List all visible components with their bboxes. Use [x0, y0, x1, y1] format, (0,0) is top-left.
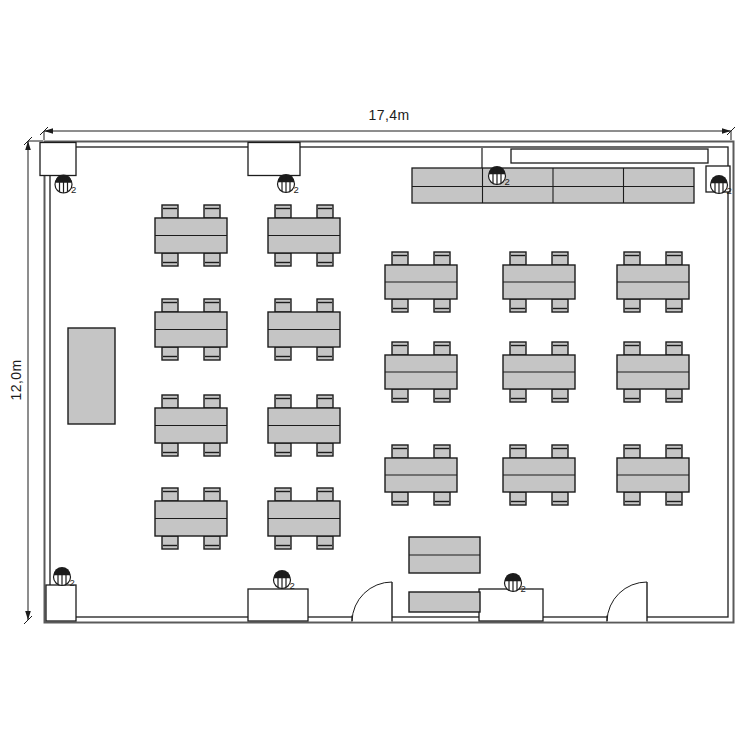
left-table-block-table-r1c2-chair-top1	[275, 205, 291, 218]
right-table-block-table-r2c1-chair-top1	[392, 342, 408, 355]
marker-label: 2	[727, 185, 732, 196]
left-table-block-table-r1c1-chair-bottom2	[204, 253, 220, 266]
left-table-block-table-r4c1-chair-bottom2	[204, 536, 220, 549]
left-table-block-table-r2c2-chair-bottom2	[317, 347, 333, 360]
left-table-block-table-r1c2-chair-bottom2	[317, 253, 333, 266]
cabinet	[68, 328, 115, 424]
right-table-block-table-r1c1-chair-top1	[392, 252, 408, 265]
right-table-block-table-r2c2-chair-top1	[510, 342, 526, 355]
left-table-block-table-r2c2-chair-top1	[275, 299, 291, 312]
right-table-block-table-r2c1-chair-bottom1	[392, 389, 408, 402]
right-table-block-table-r2c2-chair-bottom1	[510, 389, 526, 402]
right-table-block-table-r3c1-chair-top2	[434, 445, 450, 458]
right-table-block-table-r2c1-chair-bottom2	[434, 389, 450, 402]
bottom-table-2	[409, 592, 480, 612]
right-table-block-table-r3c3-chair-bottom2	[666, 492, 682, 505]
left-table-block-table-r1c1-chair-top2	[204, 205, 220, 218]
right-table-block-table-r1c3-chair-top2	[666, 252, 682, 265]
right-table-block-table-r1c2-chair-bottom2	[552, 299, 568, 312]
marker-label: 2	[521, 583, 526, 594]
right-table-block-table-r3c3-chair-top1	[624, 445, 640, 458]
left-table-block-table-r4c2-chair-bottom1	[275, 536, 291, 549]
right-table-block-table-r3c2-chair-bottom2	[552, 492, 568, 505]
right-table-block-table-r2c2-chair-top2	[552, 342, 568, 355]
left-table-block-table-r2c1-chair-bottom2	[204, 347, 220, 360]
right-table-block-table-r3c1-chair-bottom1	[392, 492, 408, 505]
right-table-block-table-r1c2-chair-top1	[510, 252, 526, 265]
left-table-block-table-r1c2-chair-bottom1	[275, 253, 291, 266]
marker-label: 2	[294, 184, 299, 195]
right-table-block-table-r2c3-chair-bottom1	[624, 389, 640, 402]
left-table-block-table-r4c2-chair-top1	[275, 488, 291, 501]
left-table-block-table-r1c1-chair-bottom1	[162, 253, 178, 266]
right-table-block-table-r3c1-chair-bottom2	[434, 492, 450, 505]
left-table-block-table-r2c2-chair-bottom1	[275, 347, 291, 360]
left-table-block-table-r3c2-chair-top2	[317, 395, 333, 408]
left-table-block-table-r2c2-chair-top2	[317, 299, 333, 312]
wall-pillar-4	[46, 585, 76, 621]
left-table-block-table-r4c1-chair-top2	[204, 488, 220, 501]
whiteboard	[511, 149, 708, 163]
wall-marker-2: 2	[278, 174, 299, 195]
right-table-block-table-r2c3-chair-top1	[624, 342, 640, 355]
right-table-block-table-r1c1-chair-bottom2	[434, 299, 450, 312]
left-table-block-table-r4c1-chair-bottom1	[162, 536, 178, 549]
right-table-block-table-r3c3-chair-bottom1	[624, 492, 640, 505]
right-table-block-table-r3c2-chair-top2	[552, 445, 568, 458]
left-table-block-table-r1c1-chair-top1	[162, 205, 178, 218]
right-table-block-table-r2c3-chair-bottom2	[666, 389, 682, 402]
left-table-block-table-r4c2-chair-bottom2	[317, 536, 333, 549]
right-table-block-table-r2c3-chair-top2	[666, 342, 682, 355]
right-table-block-table-r3c2-chair-bottom1	[510, 492, 526, 505]
right-table-block-table-r1c1-chair-top2	[434, 252, 450, 265]
right-table-block-table-r1c2-chair-top2	[552, 252, 568, 265]
right-table-block-table-r3c3-chair-top2	[666, 445, 682, 458]
floorplan-canvas: 17,4m 12,0m 2222222	[0, 0, 750, 750]
left-table-block-table-r3c2-chair-bottom2	[317, 443, 333, 456]
left-table-block-table-r3c2-chair-top1	[275, 395, 291, 408]
wall-pillar-5	[248, 589, 308, 621]
wall-marker-6: 2	[274, 570, 295, 591]
left-table-block-table-r4c2-chair-top2	[317, 488, 333, 501]
left-table-block-table-r3c1-chair-bottom1	[162, 443, 178, 456]
left-table-block-table-r3c2-chair-bottom1	[275, 443, 291, 456]
left-table-block-table-r2c1-chair-top2	[204, 299, 220, 312]
wall-pillar-2	[248, 143, 300, 176]
wall-marker-1: 2	[55, 174, 76, 195]
right-table-block-table-r3c2-chair-top1	[510, 445, 526, 458]
left-table-block-table-r1c2-chair-top2	[317, 205, 333, 218]
marker-label: 2	[71, 184, 76, 195]
left-table-block-table-r2c1-chair-top1	[162, 299, 178, 312]
marker-label: 2	[505, 176, 510, 187]
door-opening-1	[352, 611, 392, 621]
left-table-block-table-r3c1-chair-bottom2	[204, 443, 220, 456]
right-table-block-table-r3c1-chair-top1	[392, 445, 408, 458]
right-table-block-table-r1c1-chair-bottom1	[392, 299, 408, 312]
right-table-block-table-r1c3-chair-bottom2	[666, 299, 682, 312]
marker-label: 2	[290, 580, 295, 591]
left-table-block-table-r2c1-chair-bottom1	[162, 347, 178, 360]
right-table-block-table-r1c2-chair-bottom1	[510, 299, 526, 312]
door-opening-2	[607, 611, 647, 621]
floorplan-drawing: 2222222	[0, 0, 750, 750]
wall-pillar-6	[479, 589, 543, 621]
left-table-block-table-r3c1-chair-top1	[162, 395, 178, 408]
right-table-block-table-r1c3-chair-top1	[624, 252, 640, 265]
left-table-block-table-r4c1-chair-top1	[162, 488, 178, 501]
right-table-block-table-r2c1-chair-top2	[434, 342, 450, 355]
right-table-block-table-r2c2-chair-bottom2	[552, 389, 568, 402]
marker-label: 2	[70, 577, 75, 588]
right-table-block-table-r1c3-chair-bottom1	[624, 299, 640, 312]
left-table-block-table-r3c1-chair-top2	[204, 395, 220, 408]
wall-pillar-1	[40, 143, 76, 176]
